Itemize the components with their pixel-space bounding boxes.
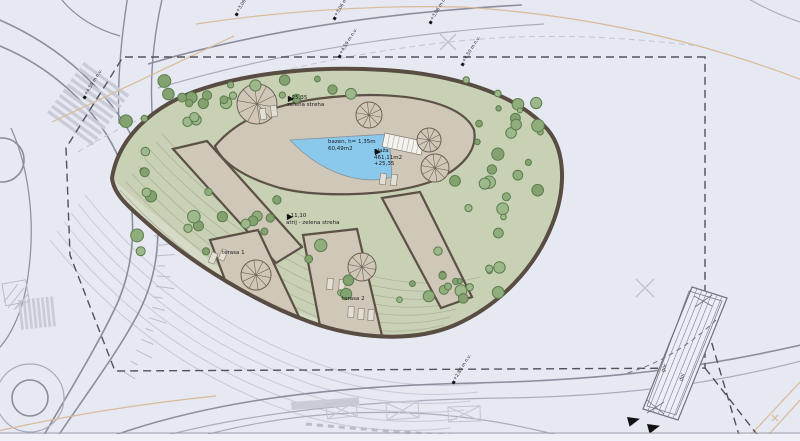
beach-label: plaža 461,11m2 +25,35 [374, 148, 402, 168]
atrium-label: +11,10 atrij - zelena streha [286, 213, 340, 226]
tree-symbol [261, 228, 268, 235]
tree-symbol [205, 188, 212, 195]
tree-symbol [217, 212, 227, 222]
tree-symbol [120, 115, 133, 128]
tree-symbol [188, 210, 201, 223]
tree-symbol [410, 281, 416, 287]
tree-symbol [463, 77, 469, 83]
site-plan-canvas: +25,35 zelena streha bazen, h= 1,35m 60,… [0, 0, 800, 441]
tree-symbol [457, 279, 462, 284]
tree-symbol [163, 88, 175, 100]
tree-symbol [343, 275, 354, 286]
pool-label: bazen, h= 1,35m 60,49m2 [328, 139, 376, 152]
tree-symbol [158, 75, 171, 88]
tree-symbol [501, 214, 507, 220]
tree-symbol [136, 247, 145, 256]
tree-symbol [141, 147, 150, 156]
tree-symbol [202, 248, 209, 255]
roof-elevation-label: +25,35 zelena streha [287, 95, 324, 108]
tree-symbol [346, 88, 357, 99]
tree-symbol [511, 119, 522, 130]
terrace-2-label: terasa 2 [342, 296, 365, 303]
tree-symbol [532, 184, 544, 196]
tree-symbol [475, 139, 481, 145]
tree-symbol [328, 85, 337, 94]
tree-symbol [229, 92, 236, 99]
tree-symbol [525, 159, 531, 165]
tree-symbol [314, 76, 320, 82]
tree-symbol [466, 284, 473, 291]
tree-symbol [450, 175, 461, 186]
tree-symbol [202, 91, 211, 100]
terrace-1-label: terasa 1 [222, 250, 245, 257]
tree-symbol [439, 272, 446, 279]
tree-symbol [227, 82, 233, 88]
tree-symbol [185, 99, 192, 106]
drawing-margin [0, 434, 800, 441]
tree-symbol [190, 112, 199, 121]
tree-symbol [423, 291, 434, 302]
elevation-flag-icon [374, 148, 382, 156]
tree-symbol [141, 115, 147, 121]
tree-symbol [397, 297, 403, 303]
tree-symbol [444, 283, 451, 290]
tree-symbol [497, 203, 509, 215]
tree-symbol [517, 108, 522, 113]
tree-symbol [492, 287, 504, 299]
pool-label-line2: 60,49m2 [328, 146, 376, 153]
tree-symbol [492, 148, 504, 160]
tree-symbol [241, 219, 250, 228]
tree-symbol [532, 119, 545, 132]
beach-elevation: +25,35 [374, 161, 394, 168]
tree-symbol [496, 106, 501, 111]
tree-symbol [279, 92, 285, 98]
tree-symbol [142, 188, 151, 197]
tree-symbol [502, 193, 510, 201]
tree-symbol [495, 90, 502, 97]
tree-symbol [486, 265, 493, 272]
tree-symbol [479, 178, 490, 189]
tree-symbol [513, 170, 523, 180]
tree-symbol [250, 80, 261, 91]
tree-symbol [531, 97, 542, 108]
tree-symbol [131, 229, 144, 242]
pool-label-line1: bazen, h= 1,35m [328, 139, 376, 146]
tree-symbol [465, 204, 472, 211]
tree-symbol [178, 93, 187, 102]
tree-symbol [184, 224, 192, 232]
elevation-flag-icon [287, 95, 295, 103]
tree-symbol [476, 120, 483, 127]
tree-symbol [487, 165, 496, 174]
tree-symbol [315, 239, 327, 251]
tree-symbol [305, 255, 313, 263]
atrium-name: atrij - zelena streha [286, 220, 340, 227]
tree-symbol [273, 196, 281, 204]
elevation-flag-icon [286, 213, 294, 221]
tree-symbol [266, 214, 274, 222]
tree-symbol [493, 228, 503, 238]
tree-symbol [140, 168, 149, 177]
tree-symbol [434, 247, 442, 255]
tree-symbol [279, 75, 289, 85]
tree-symbol [458, 294, 468, 304]
tree-symbol [220, 96, 228, 104]
tree-symbol [494, 262, 505, 273]
